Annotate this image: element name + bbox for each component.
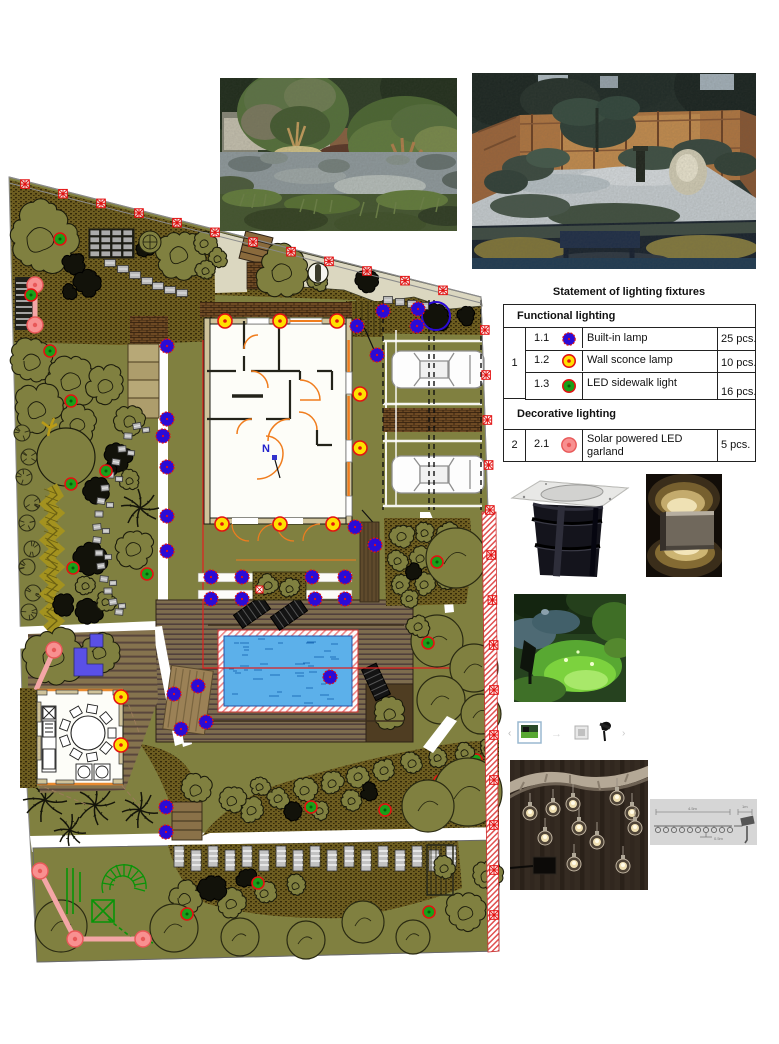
svg-text:N: N xyxy=(262,443,270,455)
svg-text:›: › xyxy=(622,728,625,739)
svg-text:1m: 1m xyxy=(742,804,748,809)
svg-text:‹: ‹ xyxy=(508,728,511,739)
svg-text:→: → xyxy=(551,728,562,740)
svg-text:4.5m: 4.5m xyxy=(688,806,698,811)
svg-text:0.5m: 0.5m xyxy=(714,836,724,841)
